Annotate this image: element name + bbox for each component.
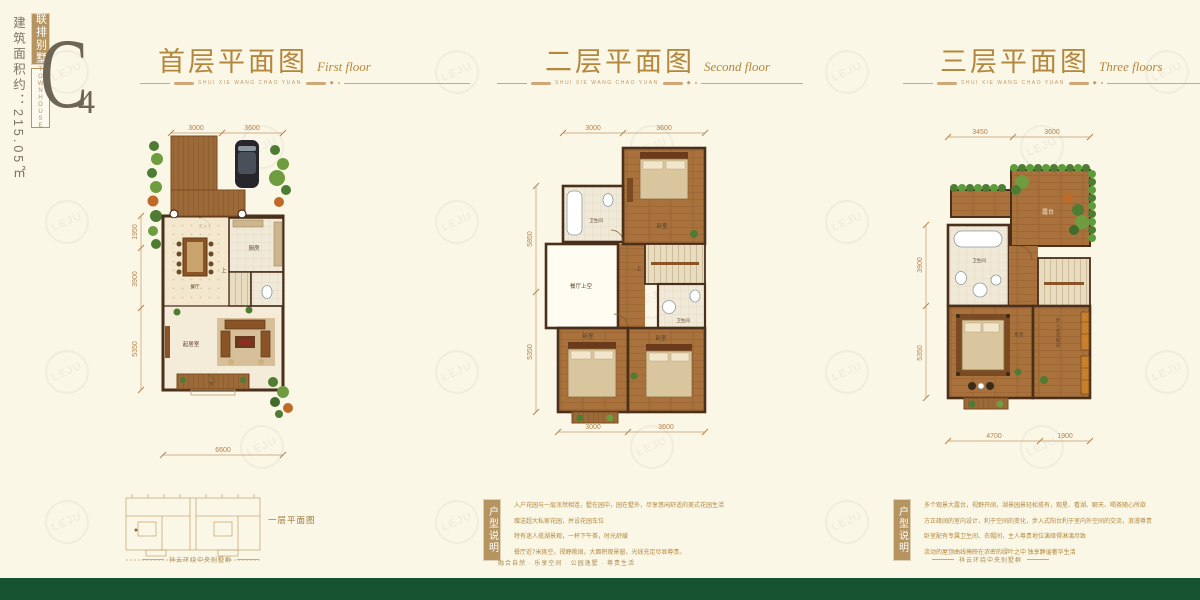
leju-watermark: LEJU [428,43,486,101]
divider-caption: SHUI XIE WANG CHAO YUAN [555,80,659,86]
keyplan-drawing [118,486,273,566]
leju-watermark: LEJU [818,343,876,401]
motto-text: 融合自然 · 乐享空间 · 公园逸墅 · 尊贵生活 [498,558,635,567]
diamond-ornament: ◆ [330,81,334,86]
description-line: 卧室配有专属卫生间、衣帽间，主人尊贵地位演绎得淋漓尽致 [924,530,1152,546]
balcony [964,398,1008,409]
svg-text:3600: 3600 [1044,129,1060,136]
porch: 下 [177,374,249,395]
unit-description-badge: 户型说明 [893,499,911,561]
divider-caption: SHUI XIE WANG CHAO YUAN [198,80,302,86]
svg-text:厨房: 厨房 [248,244,260,252]
car [235,140,259,188]
stairs: 上 [636,244,705,284]
svg-text:起居室: 起居室 [183,340,200,348]
svg-text:下: 下 [208,382,213,388]
svg-text:卧室: 卧室 [655,334,667,342]
footer-motto-right: 祥云环绕中央别墅群 [932,555,1049,564]
bathroom [251,272,283,306]
svg-text:3000: 3000 [585,125,601,132]
svg-text:1950: 1950 [132,224,139,240]
building-area-label: 建筑面积约：215.05㎡ [9,16,28,181]
svg-text:5350: 5350 [132,341,139,357]
dim-top: 3450 3600 [945,129,1093,140]
walk-in-closet [1033,306,1090,398]
bedroom-right: 卧室 [628,328,705,412]
svg-text:5350: 5350 [917,345,924,361]
svg-text:上: 上 [221,267,226,274]
plan-title: 首层平面图 [158,40,308,79]
unit-description-text: 多个观景大露台，视野开阔，湖景园景轻松揽有，观星、看湖、聊天、喝茶随心所欲 方正… [924,499,1152,561]
svg-text:5850: 5850 [527,231,534,247]
leju-watermark: LEJU [428,493,486,551]
master-bedroom: 卧室 [948,306,1033,398]
walk-in-closet-label: 步入式衣帽间 [1055,318,1061,348]
unit-description-badge: 户型说明 [483,499,501,561]
leju-watermark: LEJU [428,343,486,401]
dim-left: 1950 3900 5350 [132,213,144,393]
description-line: 特有迷人揽湖景观，一杯下午茶，时光舒缓 [514,530,724,546]
hallway [1009,246,1038,306]
svg-text:3900: 3900 [917,257,924,273]
balcony [572,412,618,423]
first-floor-header: 首层平面图 First floor [158,40,371,79]
bedroom-left: 卧室 [558,314,628,412]
svg-text:卫生间: 卫生间 [676,317,690,324]
svg-text:卧室: 卧室 [656,222,668,230]
poster-canvas: LEJU LEJU LEJU LEJU LEJU LEJU LEJU LEJU … [0,0,1200,600]
svg-text:3900: 3900 [132,271,139,287]
svg-text:卫生间: 卫生间 [972,257,986,264]
bathroom: 卫生间 [948,225,1009,306]
footer-motto-left: 祥云环绕中央别墅群 [142,555,259,564]
header-divider: SHUI XIE WANG CHAO YUAN ◆ [140,80,470,86]
driveway [171,136,217,190]
footer-motto-center: 融合自然 · 乐享空间 · 公园逸墅 · 尊贵生活 [498,558,635,567]
svg-text:3000: 3000 [188,125,204,132]
description-line: 赠送超大私家花园，并设花园车位 [514,515,724,531]
dim-bottom: 4700 1900 [945,433,1093,444]
floorplan-third-floor: 3450 3600 3900 5350 4700 1900 [918,126,1118,456]
bathroom-top: 卫生间 [563,186,623,242]
svg-text:3000: 3000 [585,424,601,431]
dim-left: 5850 5350 [527,183,539,415]
third-floor-header: 三层平面图 Three floors [940,40,1162,79]
dining-void: 餐厅上空 [546,244,618,328]
second-floor-header: 二层平面图 Second floor [545,40,770,79]
svg-text:卧室: 卧室 [582,332,594,340]
floorplan-first-floor: 3000 3600 1950 3900 5350 6600 [133,122,308,467]
footer-green-bar [0,578,1200,600]
leju-watermark: LEJU [1138,343,1196,401]
description-line: 方正疏阔的室内设计，利于空间的变化，步入式阳台利于室内外空间的交流，浪漫尊贵 [924,515,1152,531]
floorplan-second-floor: 3000 3600 5850 5350 3000 3600 [528,122,718,447]
description-line: 入户花园与一层浑然相连，墅在园中，园在墅外，尽享悠闲舒适的美式花园生活 [514,499,724,515]
svg-text:露台: 露台 [1042,208,1054,216]
keyplan-label: 一层平面图 [268,514,316,526]
leju-watermark: LEJU [818,43,876,101]
bathroom-mid: 卫生间 [658,284,705,328]
plan-title: 二层平面图 [545,40,695,79]
hallway [618,244,645,328]
plan-title: 三层平面图 [940,40,1090,79]
bedroom-top: 卧室 [623,148,705,244]
svg-text:3600: 3600 [244,125,260,132]
dim-bottom: 3000 3600 [555,424,708,435]
svg-text:卧室: 卧室 [1015,331,1024,338]
garden-plants-left [147,141,163,249]
header-divider: SHUI XIE WANG CHAO YUAN ◆ [903,80,1200,86]
plan-subtitle: Three floors [1099,59,1162,75]
svg-text:5350: 5350 [527,344,534,360]
dim-left: 3900 5350 [917,222,929,401]
svg-text:1900: 1900 [1057,433,1073,440]
diamond-ornament: ◆ [1093,81,1097,86]
header-divider: SHUI XIE WANG CHAO YUAN ◆ [497,80,803,86]
dim-top: 3000 3600 [168,125,286,136]
divider-caption: SHUI XIE WANG CHAO YUAN [961,80,1065,86]
svg-text:餐厅: 餐厅 [191,283,200,290]
dim-bottom: 6600 [160,447,286,458]
keyplan-outline [126,494,260,560]
garden-plants-right [269,145,291,207]
motto-text: 祥云环绕中央别墅群 [959,555,1022,564]
svg-text:餐厅上空: 餐厅上空 [570,282,593,290]
leju-watermark: LEJU [38,493,96,551]
plan-subtitle: First floor [317,59,371,75]
leju-watermark: LEJU [38,193,96,251]
dim-top: 3000 3600 [560,125,708,136]
diamond-ornament: ◆ [687,81,691,86]
leju-watermark: LEJU [428,193,486,251]
svg-text:4700: 4700 [986,433,1002,440]
kitchen: 厨房 [229,218,283,272]
description-line: 多个观景大露台，视野开阔，湖景园景轻松揽有，观星、看湖、聊天、喝茶随心所欲 [924,499,1152,515]
svg-text:3600: 3600 [656,125,672,132]
stairs [1038,258,1090,310]
svg-text:上: 上 [636,265,641,272]
svg-text:卫生间: 卫生间 [589,217,603,224]
motto-text: 祥云环绕中央别墅群 [169,555,232,564]
svg-text:3600: 3600 [658,424,674,431]
leju-watermark: LEJU [38,343,96,401]
svg-text:6600: 6600 [215,447,231,454]
unit-description-text: 入户花园与一层浑然相连，墅在园中，园在墅外，尽享悠闲舒适的美式花园生活 赠送超大… [514,499,724,561]
unit-code-number: 4 [78,84,95,122]
leju-watermark: LEJU [818,193,876,251]
keyplan-unit-marker [135,529,138,532]
svg-text:3450: 3450 [972,129,988,136]
plan-subtitle: Second floor [704,59,770,75]
leju-watermark: LEJU [818,493,876,551]
